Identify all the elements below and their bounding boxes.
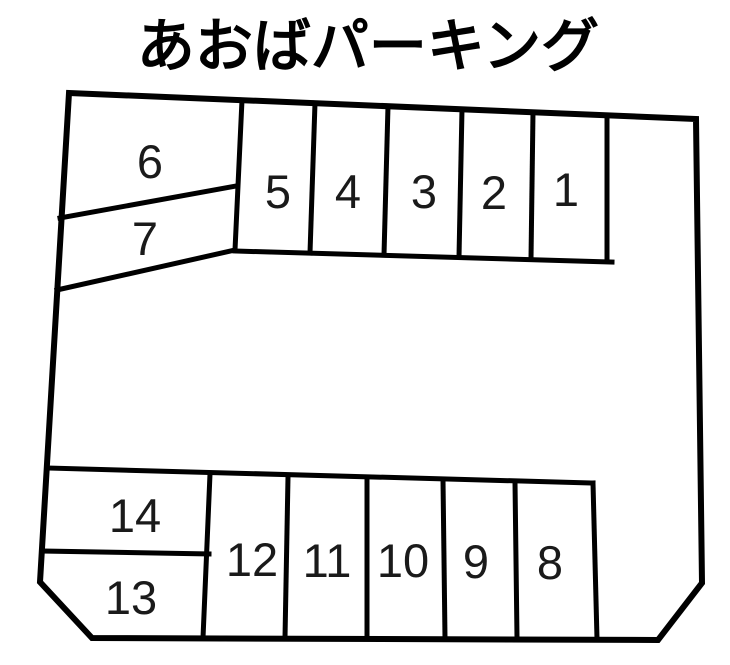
- space-label-12: 12: [226, 533, 278, 586]
- space-label-6: 6: [137, 135, 163, 188]
- space-label-3: 3: [411, 165, 437, 218]
- space-label-8: 8: [537, 536, 563, 589]
- space-label-2: 2: [481, 166, 507, 219]
- space-label-11: 11: [303, 534, 352, 587]
- stall-line-left-of-5: [235, 100, 242, 250]
- stall-line-4-3: [384, 106, 388, 255]
- space-number-labels: 1 2 3 4 5 6 7 8 9 10 11 12 13 14: [105, 135, 579, 624]
- space-label-4: 4: [335, 165, 361, 218]
- stall-line-14-13: [43, 551, 209, 554]
- left-lower-stall-lines: [43, 551, 209, 554]
- stall-line-right-of-8: [593, 483, 597, 639]
- space-label-5: 5: [265, 165, 291, 218]
- space-label-10: 10: [377, 534, 429, 587]
- space-label-13: 13: [105, 571, 157, 624]
- stall-line-10-9: [443, 480, 445, 638]
- top-row-bottom-line: [235, 251, 612, 262]
- space-label-14: 14: [109, 489, 161, 542]
- stall-line-12-11: [285, 477, 288, 638]
- parking-map-page: あおばパーキング: [0, 0, 730, 665]
- stall-line-2-1: [531, 112, 533, 259]
- stall-line-3-2: [459, 109, 462, 257]
- parking-lot-diagram: あおばパーキング: [0, 0, 730, 665]
- bottom-row-top-line: [47, 468, 593, 483]
- stall-line-5-4: [310, 103, 315, 253]
- parking-lot-title: あおばパーキング: [137, 14, 599, 79]
- space-label-7: 7: [132, 212, 158, 265]
- space-label-9: 9: [463, 535, 489, 588]
- space-label-1: 1: [553, 163, 579, 216]
- stall-line-9-8: [515, 482, 517, 638]
